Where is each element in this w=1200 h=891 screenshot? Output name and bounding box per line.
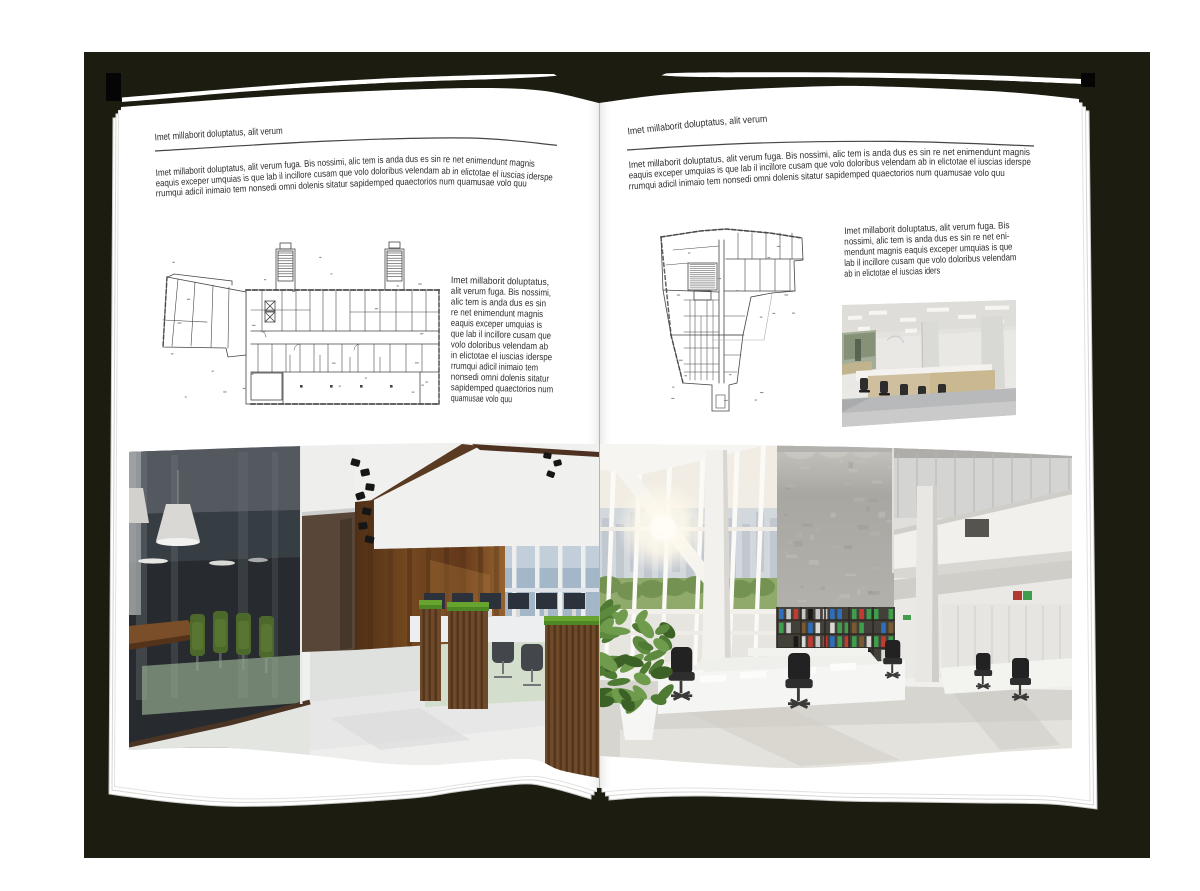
svg-text:eaquis exceper umquias is: eaquis exceper umquias is <box>451 317 543 330</box>
svg-text:quamusae volo quu: quamusae volo quu <box>451 392 512 404</box>
